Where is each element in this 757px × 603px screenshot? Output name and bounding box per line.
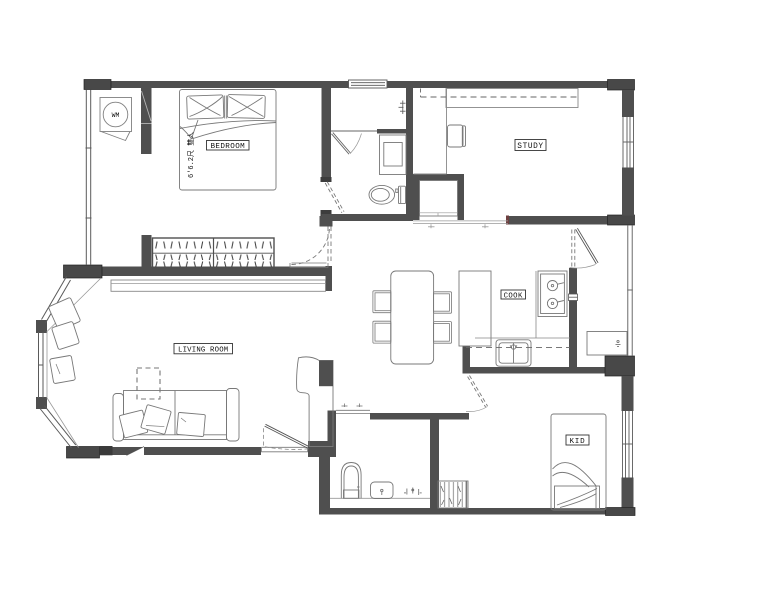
svg-text:COOK: COOK [504, 292, 523, 300]
svg-text:STUDY: STUDY [517, 143, 543, 151]
svg-text:LIVING ROOM: LIVING ROOM [178, 347, 228, 355]
svg-text:BEDROOM: BEDROOM [210, 143, 245, 151]
svg-text:6'6.2尺 雙人: 6'6.2尺 雙人 [186, 132, 196, 178]
svg-text:WM: WM [112, 112, 120, 119]
svg-text:KID: KID [569, 438, 585, 446]
